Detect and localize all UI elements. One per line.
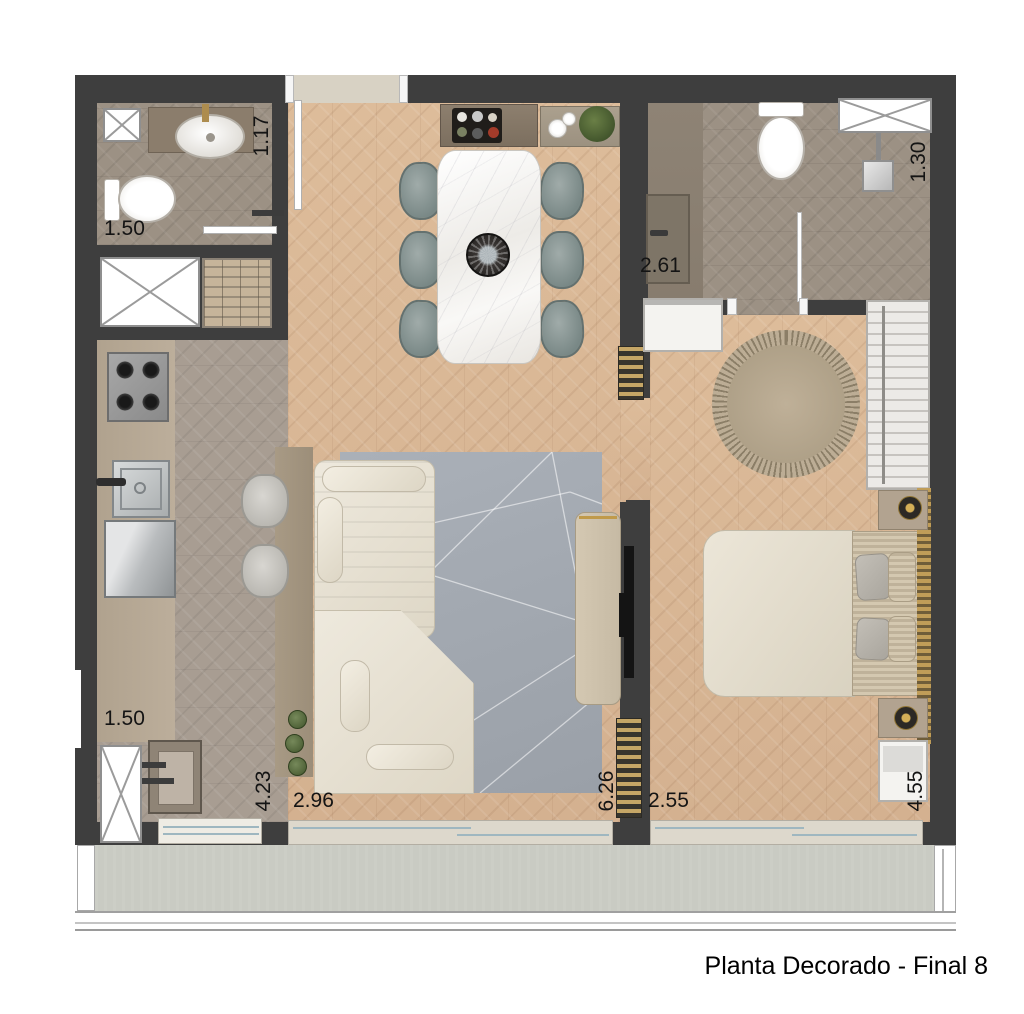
stool: [241, 544, 289, 598]
plant-pot: [288, 710, 307, 729]
plate: [457, 127, 467, 137]
dim-bedroom-width: 2.55: [648, 789, 689, 813]
dresser-shadow: [645, 300, 721, 305]
dim-bedroom-length: 4.55: [904, 763, 928, 819]
plate: [472, 111, 483, 122]
toilet1-bowl: [118, 175, 176, 223]
glass-line: [792, 834, 917, 836]
slat-divider-top: [618, 346, 644, 400]
console-plant: [579, 106, 615, 142]
sink-drain: [134, 482, 146, 494]
shaft-mid-left: [100, 257, 200, 327]
decor-plate: [562, 112, 576, 126]
kitchen-sink: [112, 460, 170, 518]
bath2-door-jamb: [727, 298, 737, 315]
entry-door-jamb-left: [285, 75, 294, 103]
shower-glass-panel: [797, 212, 802, 302]
burner-icon: [115, 360, 135, 380]
window-glass-line: [163, 833, 259, 835]
table-lamp: [894, 706, 918, 730]
glass-line: [655, 827, 804, 829]
bed-bolster: [888, 552, 916, 602]
toilet2-tank: [758, 102, 804, 117]
dining-chair: [540, 231, 584, 289]
bathroom2-door-threshold: [737, 300, 800, 315]
dining-chair: [539, 161, 585, 221]
bed-duvet: [703, 530, 855, 697]
bed-bolster: [888, 616, 916, 662]
dim-bath2-width: 1.30: [907, 134, 931, 190]
bath1-sink-drain: [206, 133, 215, 142]
bedroom-sliding-door-sill: [650, 820, 923, 845]
slat-divider-bottom: [616, 718, 642, 818]
laundry-faucet: [142, 762, 166, 768]
wall-notch: [75, 670, 81, 748]
refrigerator: [104, 520, 176, 598]
tv-console: [575, 512, 621, 705]
masonry-panel: [202, 258, 272, 328]
dim-service-length: 1.50: [104, 707, 145, 731]
table-lamp: [898, 496, 922, 520]
dim-hall-length: 2.61: [640, 254, 681, 278]
balcony-rail-left: [77, 845, 95, 911]
dim-kitchen-length: 4.23: [252, 763, 276, 819]
sofa-armrest: [322, 466, 426, 492]
glass-line: [293, 827, 471, 829]
balcony-floor: [95, 845, 935, 915]
serving-tray: [452, 108, 502, 143]
sofa-armrest: [366, 744, 454, 770]
floor-plan: 1.17 1.50 2.61 1.30 1.50 4.23 2.96 6.26 …: [0, 0, 1024, 1014]
plant-pot: [288, 757, 307, 776]
shaft-top-left: [103, 108, 141, 142]
entry-threshold: [293, 75, 400, 103]
window-glass-line: [163, 826, 259, 828]
plan-caption: Planta Decorado - Final 8: [588, 952, 988, 981]
bath2-door-jamb: [799, 298, 808, 315]
balcony-rail-bottom: [75, 911, 956, 931]
kitchen-faucet: [96, 478, 126, 486]
wardrobe-rail: [882, 306, 885, 484]
burner-icon: [115, 392, 135, 412]
shaft-top-right: [838, 98, 932, 133]
wardrobe: [866, 300, 930, 490]
shaft-service: [100, 745, 142, 843]
rail-line: [75, 922, 956, 924]
stool: [241, 474, 289, 528]
dim-bath1-length: 1.50: [104, 217, 145, 241]
sofa-cushion: [317, 497, 343, 583]
burner-icon: [141, 392, 161, 412]
service-window-sill: [158, 818, 262, 844]
laundry-faucet-2: [142, 778, 174, 784]
dim-living-length: 6.26: [595, 763, 619, 819]
laundry-tub: [148, 740, 202, 814]
door-handle: [650, 230, 668, 236]
entry-door-leaf: [294, 100, 302, 210]
dining-chair: [539, 299, 585, 359]
sofa-cushion: [340, 660, 370, 732]
shower-head: [862, 160, 894, 192]
cooktop: [107, 352, 169, 422]
bedroom-dresser: [643, 298, 723, 352]
tv-mount: [619, 593, 634, 637]
shower-arm: [876, 133, 881, 163]
dim-living-width: 2.96: [293, 789, 334, 813]
living-sliding-door-sill: [288, 820, 613, 845]
plate: [488, 127, 499, 138]
bath1-door-leaf: [203, 226, 277, 234]
bed-pillow: [855, 617, 891, 661]
buffet-sideboard: [440, 104, 538, 147]
table-centerpiece: [466, 233, 510, 277]
tv-console-trim: [579, 516, 617, 519]
plate: [472, 128, 483, 139]
bed-pillow: [854, 553, 891, 601]
bath1-faucet: [202, 104, 209, 122]
plate: [488, 113, 497, 122]
towel-bar: [252, 210, 284, 216]
glass-line: [457, 834, 609, 836]
dim-bath1-width: 1.17: [250, 108, 274, 164]
plate: [457, 112, 467, 122]
toilet2-bowl: [757, 116, 805, 180]
living-bedroom-passage: [620, 398, 650, 502]
burner-icon: [141, 360, 161, 380]
bedroom-round-rug-center: [727, 345, 845, 463]
entry-door-jamb-right: [399, 75, 408, 103]
plant-pot: [285, 734, 304, 753]
